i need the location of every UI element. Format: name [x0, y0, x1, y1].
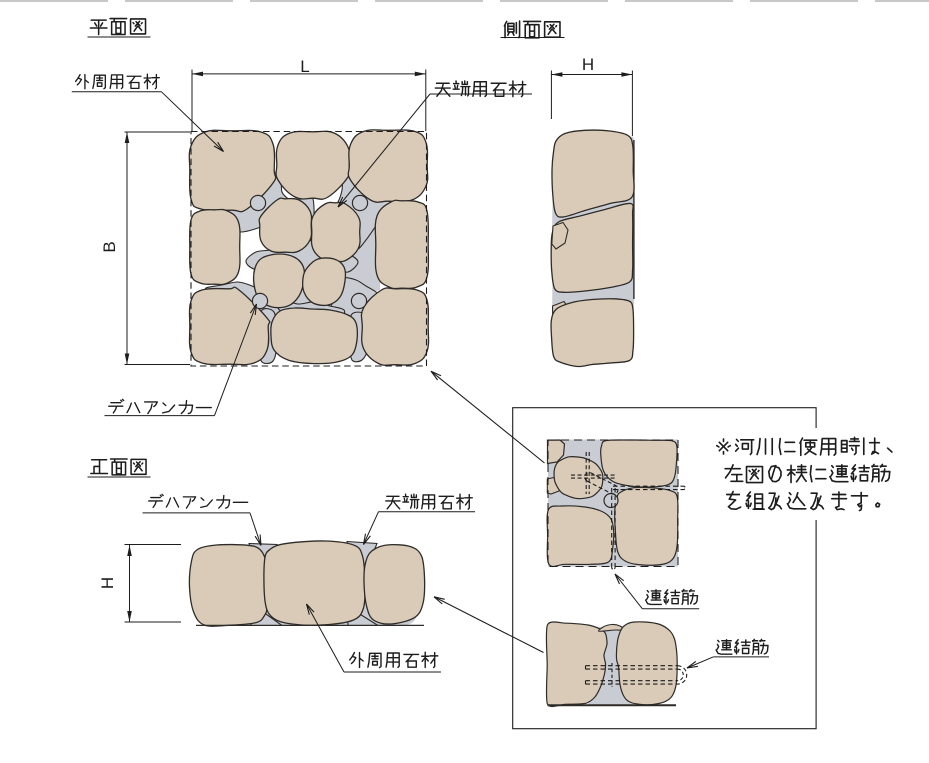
svg-text:B: B [100, 241, 119, 252]
svg-text:H: H [582, 55, 594, 74]
svg-text:H: H [98, 577, 117, 589]
svg-text:L: L [300, 57, 309, 76]
